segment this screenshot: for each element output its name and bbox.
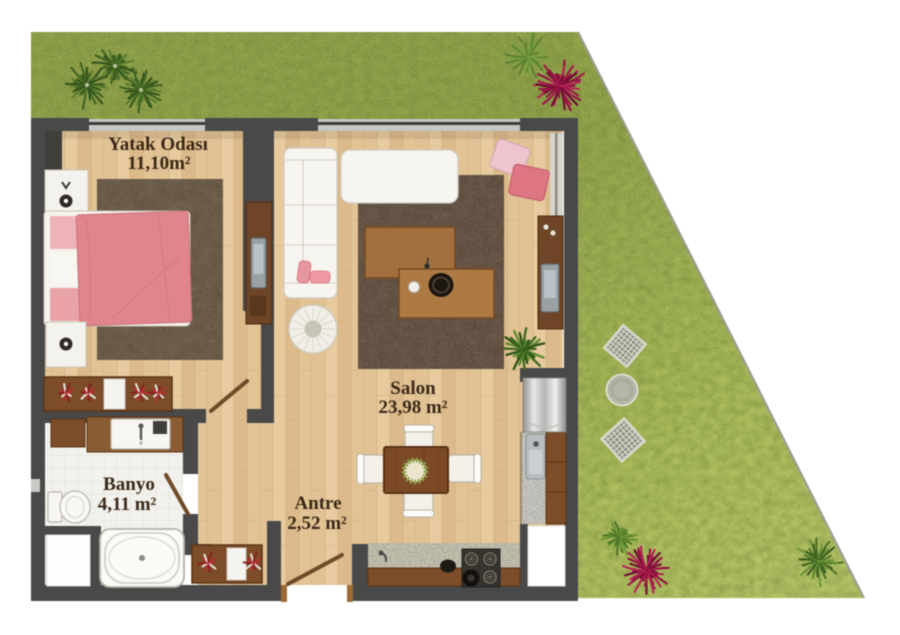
svg-text:23,98 m²: 23,98 m² [378,397,447,418]
svg-text:Salon: Salon [390,378,436,399]
svg-text:Antre: Antre [294,493,341,514]
svg-text:Yatak Odası: Yatak Odası [108,134,208,155]
svg-text:11,10m²: 11,10m² [127,153,191,174]
svg-text:Banyo: Banyo [103,474,155,495]
svg-text:2,52 m²: 2,52 m² [287,513,347,534]
svg-text:4,11 m²: 4,11 m² [98,494,157,515]
